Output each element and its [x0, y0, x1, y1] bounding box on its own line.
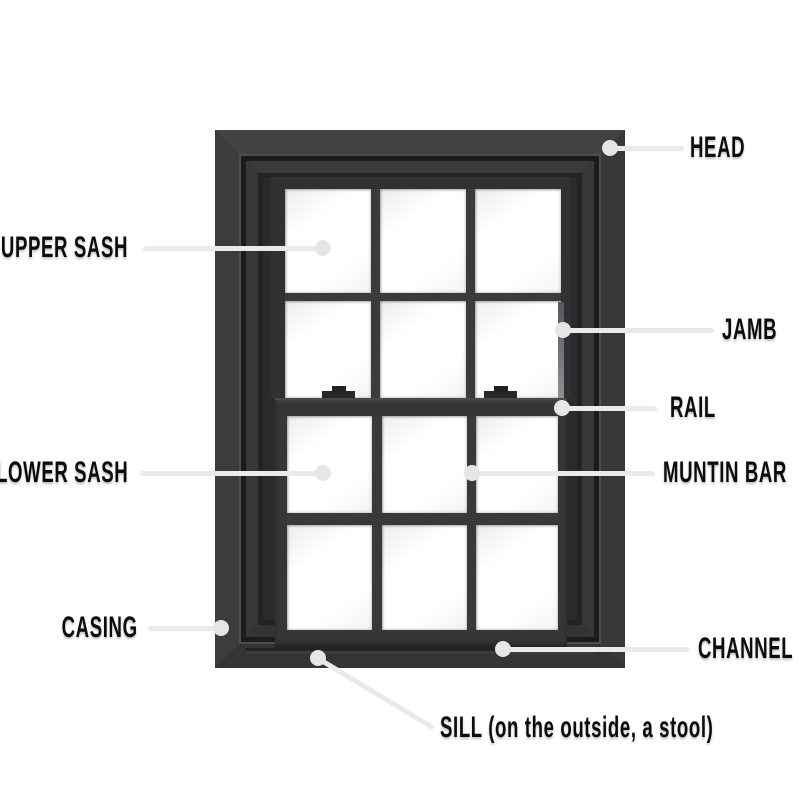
glass-pane	[382, 416, 467, 513]
label-casing: CASING	[62, 613, 138, 643]
glass-pane	[380, 301, 466, 398]
sash-lock-right-nub	[494, 386, 508, 392]
lower-sash-grid	[287, 416, 558, 630]
label-channel: CHANNEL	[698, 634, 793, 664]
glass-pane	[475, 301, 561, 398]
glass-pane	[382, 525, 467, 630]
callout-line-jamb	[563, 328, 714, 333]
callout-line-upper-sash	[143, 246, 325, 251]
label-upper-sash: UPPER SASH	[1, 233, 128, 263]
window-parts-diagram: HEAD UPPER SASH JAMB RAIL LOWER SASH MUN…	[0, 0, 800, 800]
glass-pane	[476, 416, 558, 513]
glass-pane	[380, 189, 466, 293]
callout-dot-jamb	[555, 322, 571, 338]
callout-line-casing	[148, 626, 221, 631]
sash-lock-left-nub	[332, 386, 346, 392]
sash-lock-right	[484, 391, 517, 398]
callout-dot-channel	[495, 641, 511, 657]
upper-sash-grid	[285, 189, 561, 398]
label-head: HEAD	[690, 133, 745, 163]
glass-pane	[287, 525, 372, 630]
glass-pane	[287, 416, 372, 513]
callout-dot-sill	[310, 650, 326, 666]
sash-lock-left	[322, 391, 355, 398]
label-lower-sash: LOWER SASH	[0, 458, 128, 488]
label-rail: RAIL	[670, 393, 716, 423]
callout-line-rail	[562, 406, 657, 411]
window-illustration	[215, 130, 625, 668]
callout-dot-rail	[554, 400, 570, 416]
side-channel-highlight	[558, 302, 564, 398]
callout-dot-casing	[213, 620, 229, 636]
glass-pane	[285, 301, 371, 398]
callout-line-muntin-bar	[472, 471, 655, 476]
callout-line-head	[610, 146, 684, 151]
label-jamb: JAMB	[722, 315, 777, 345]
callout-dot-lower-sash	[315, 465, 331, 481]
callout-line-lower-sash	[140, 471, 323, 476]
glass-pane	[476, 525, 558, 630]
callout-dot-muntin-bar	[464, 465, 480, 481]
callout-dot-upper-sash	[315, 240, 331, 256]
label-muntin-bar: MUNTIN BAR	[663, 458, 787, 488]
label-sill: SILL (on the outside, a stool)	[440, 713, 713, 743]
callout-dot-head	[602, 140, 618, 156]
glass-pane	[475, 189, 561, 293]
callout-line-channel	[503, 647, 690, 652]
